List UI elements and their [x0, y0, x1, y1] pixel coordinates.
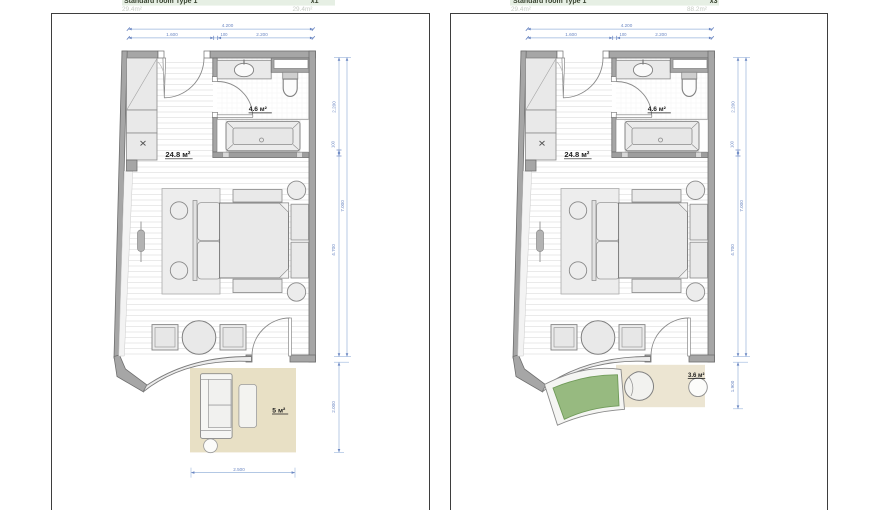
svg-text:Standard room Type 1: Standard room Type 1 — [124, 0, 197, 5]
svg-text:29.4m²: 29.4m² — [511, 6, 531, 13]
svg-text:5 м²: 5 м² — [272, 407, 286, 414]
svg-text:29.4m²: 29.4m² — [122, 6, 142, 13]
svg-text:3.6 м²: 3.6 м² — [688, 372, 704, 379]
svg-text:1.900: 1.900 — [730, 380, 735, 392]
svg-text:88.2m²: 88.2m² — [687, 6, 707, 13]
svg-text:Standard room Type 1: Standard room Type 1 — [513, 0, 586, 5]
svg-text:2.000: 2.000 — [331, 401, 336, 413]
svg-text:x1: x1 — [311, 0, 319, 5]
svg-text:29.4m²: 29.4m² — [293, 6, 313, 13]
svg-text:2.500: 2.500 — [233, 467, 245, 472]
svg-text:x3: x3 — [710, 0, 718, 5]
